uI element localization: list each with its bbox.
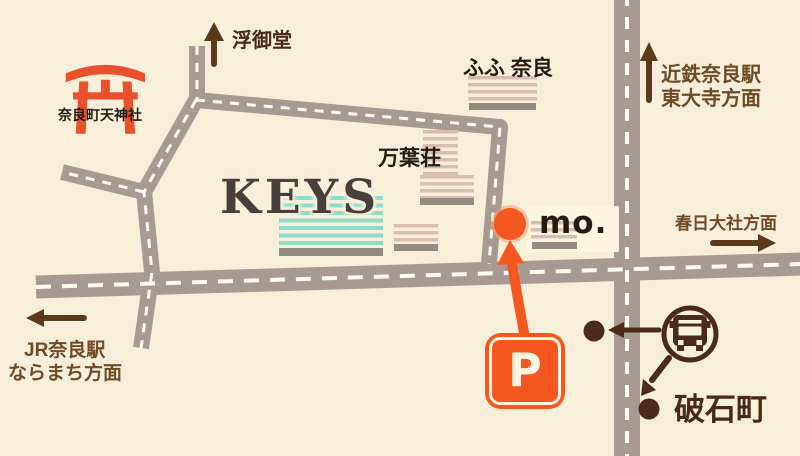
direction-kintetsu-line2: 東大寺方面	[661, 87, 761, 111]
parking-icon: P	[485, 333, 565, 409]
mo-label: mo.	[539, 205, 607, 241]
fufu-nara-label: ふふ 奈良	[463, 52, 553, 82]
route-arrow-icon	[497, 240, 526, 344]
direction-jr-line2: ならまち方面	[8, 362, 122, 385]
direction-jr-line1: JR奈良駅	[8, 339, 122, 362]
bus-stop-dot-south	[639, 399, 660, 420]
arrow-up-ukimido-icon	[204, 22, 224, 64]
shrine-label: 奈良町天神社	[58, 105, 142, 125]
direction-kasuga: 春日大社方面	[675, 209, 777, 234]
manyoso-label: 万葉荘	[378, 142, 441, 172]
arrow-right-kasuga-icon	[713, 234, 776, 252]
direction-jr: JR奈良駅 ならまち方面	[8, 339, 122, 385]
bus-stop-name-label: 破石町	[674, 384, 767, 429]
bus-icon	[664, 308, 716, 360]
direction-kintetsu-line1: 近鉄奈良駅	[661, 63, 761, 87]
keys-logo: KEYS	[220, 170, 380, 225]
parking-label: P	[508, 343, 542, 397]
location-dot-icon	[491, 205, 529, 243]
arrow-down-busstop-icon	[641, 358, 669, 396]
arrow-up-kintetsu-icon	[640, 42, 658, 100]
bus-stop-dot-west	[584, 321, 605, 342]
arrow-left-jr-icon	[26, 309, 84, 327]
ukimido-label: 浮御堂	[232, 24, 292, 53]
direction-kintetsu: 近鉄奈良駅 東大寺方面	[661, 63, 761, 112]
map-canvas: 奈良町天神社 浮御堂 ふふ 奈良 万葉荘 KEYS mo. 近鉄奈良駅 東大寺方…	[0, 0, 800, 456]
parking-icon-inner: P	[489, 337, 561, 405]
arrow-left-busstop-icon	[608, 322, 659, 338]
